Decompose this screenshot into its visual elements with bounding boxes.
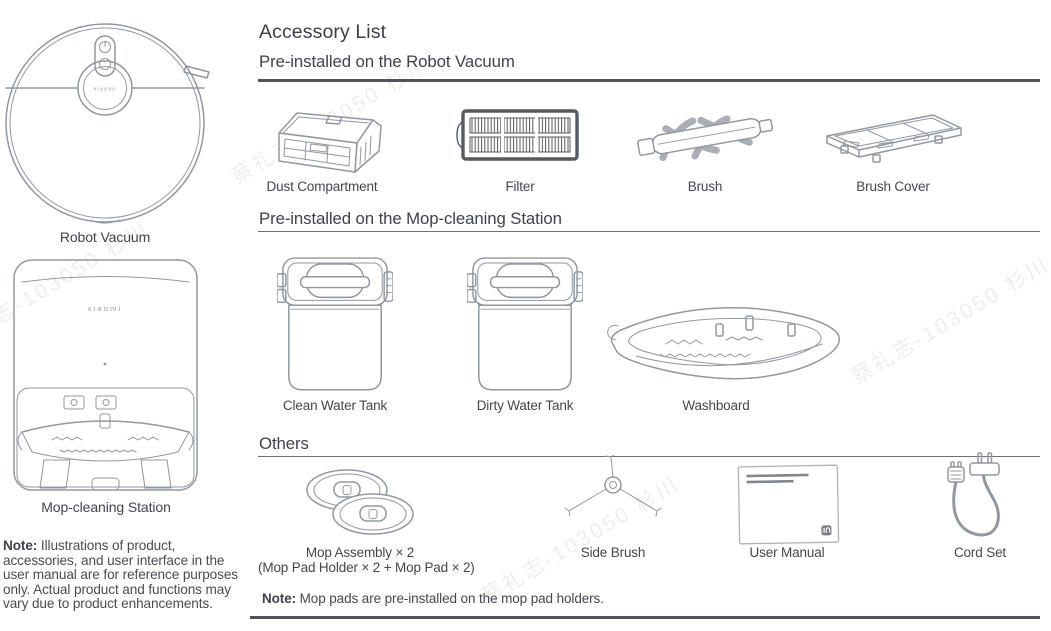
footnote: Note: Mop pads are pre-installed on the … [262, 591, 604, 606]
section-heading-others: Others [259, 434, 309, 454]
section-rule [258, 79, 1040, 82]
item-label-cord-set: Cord Set [910, 545, 1050, 560]
left-note-text: Illustrations of product, accessories, a… [3, 538, 238, 611]
robot-vacuum-illustration: xiaomi [2, 20, 212, 228]
robot-vacuum-caption: Robot Vacuum [20, 229, 190, 245]
item-label-user-manual: User Manual [717, 545, 857, 560]
item-label-filter: Filter [450, 179, 590, 194]
section-rule [258, 231, 1040, 232]
page-title: Accessory List [259, 21, 386, 44]
mop-cleaning-station-illustration: xiaomi [8, 256, 204, 496]
item-label-brush-cover: Brush Cover [823, 179, 963, 194]
item-label-brush: Brush [635, 179, 775, 194]
brush-cover-icon [815, 102, 971, 168]
filter-icon [455, 105, 585, 165]
station-caption: Mop-cleaning Station [20, 499, 192, 515]
item-label-clean-water-tank: Clean Water Tank [265, 398, 405, 413]
bottom-rule [250, 616, 1040, 619]
item-label-mop-assembly: Mop Assembly × 2 [258, 545, 462, 560]
section-heading-station: Pre-installed on the Mop-cleaning Statio… [259, 209, 562, 229]
user-manual-icon [736, 463, 842, 547]
watermark-text: 蔡礼志-103050 杉川 [845, 248, 1051, 391]
dirty-water-tank-icon [467, 246, 583, 394]
cord-set-icon [941, 452, 1013, 548]
section-heading-robot-vacuum: Pre-installed on the Robot Vacuum [259, 52, 515, 72]
washboard-icon [596, 294, 852, 394]
left-note: Note: Illustrations of product, accessor… [3, 539, 248, 612]
item-label-washboard: Washboard [646, 398, 786, 413]
item-sublabel-mop-assembly: (Mop Pad Holder × 2 + Mop Pad × 2) [258, 560, 462, 575]
mop-assembly-icon [295, 462, 427, 542]
side-brush-icon [561, 455, 665, 533]
item-label-side-brush: Side Brush [548, 545, 678, 560]
brush-icon [630, 98, 780, 176]
manual-page: { "watermark": { "text": "蔡礼志-103050 杉川"… [0, 0, 1051, 631]
clean-water-tank-icon [277, 246, 393, 394]
item-label-dust-compartment: Dust Compartment [252, 179, 392, 194]
footnote-bold: Note: [262, 591, 296, 606]
dust-compartment-icon [253, 93, 393, 179]
robot-brand-text: xiaomi [93, 87, 116, 93]
item-label-dirty-water-tank: Dirty Water Tank [455, 398, 595, 413]
station-brand-text: xiaomi [88, 304, 123, 313]
footnote-text: Mop pads are pre-installed on the mop pa… [296, 591, 604, 606]
left-note-bold: Note: [3, 538, 37, 553]
